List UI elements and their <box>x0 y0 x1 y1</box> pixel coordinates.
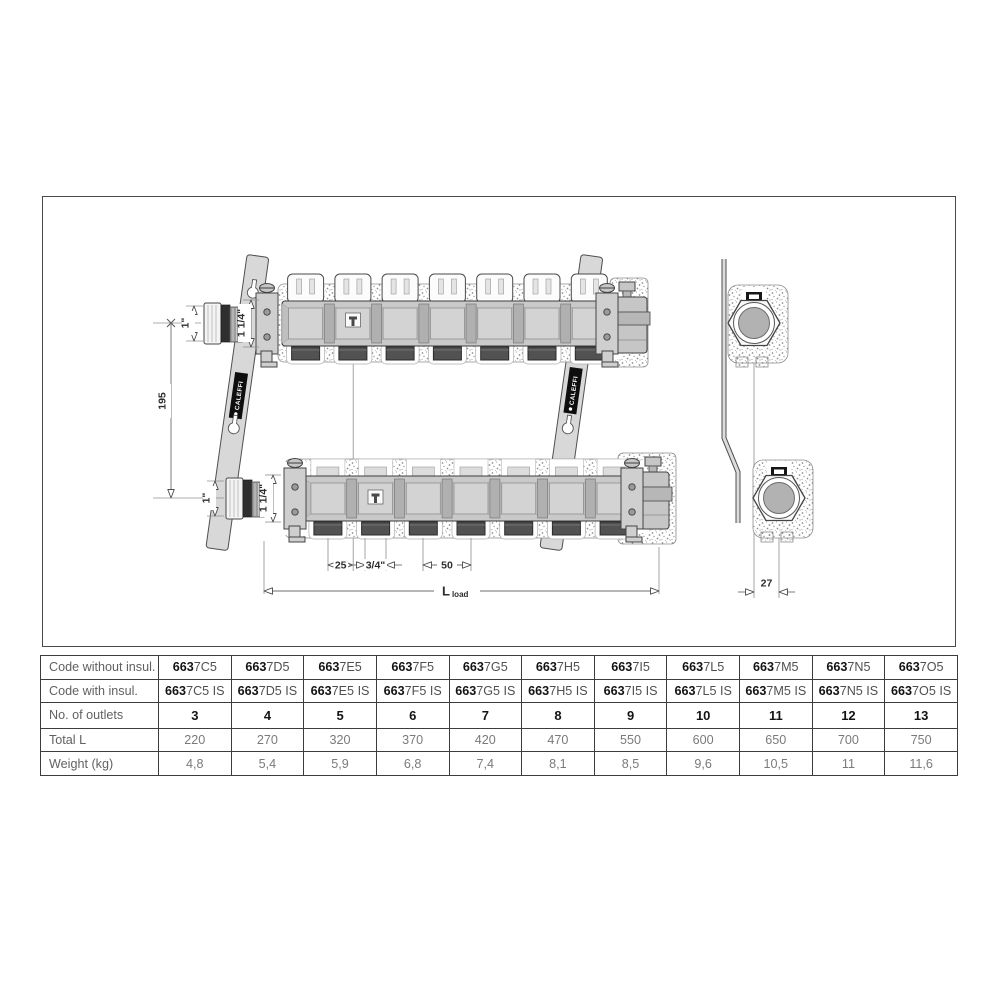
body-panel <box>289 308 323 339</box>
outlet-port <box>292 347 320 360</box>
code-cell: 6637I5 <box>594 656 667 680</box>
valve-knob <box>288 274 324 303</box>
outlet-port <box>386 347 414 360</box>
weight-cell: 4,8 <box>159 752 232 776</box>
body-panel <box>549 483 583 514</box>
row-label-cell: Total L <box>41 728 159 752</box>
body-joint <box>585 479 595 518</box>
dim-total-length: Lload <box>264 541 659 599</box>
length-cell: 470 <box>522 728 595 752</box>
outlet-port <box>457 522 485 535</box>
outlets-cell: 6 <box>376 703 449 728</box>
valve-knob <box>477 274 513 303</box>
code-cell: 6637L5 <box>667 656 740 680</box>
outlet-port <box>433 347 461 360</box>
outlet-port <box>528 347 556 360</box>
body-joint <box>347 479 357 518</box>
bottom-insulation-notches <box>311 459 631 477</box>
code-cell: 6637I5 IS <box>594 679 667 703</box>
dim-depth-offset: 27 <box>738 538 795 598</box>
body-joint <box>538 479 548 518</box>
body-panel <box>383 308 417 339</box>
top-right-clamp <box>596 284 618 368</box>
dim-cap-thread-top: 1" <box>180 306 204 341</box>
outlets-cell: 9 <box>594 703 667 728</box>
dim-main-thread-bottom: 1 1/4" <box>258 475 282 522</box>
body-joint <box>394 479 404 518</box>
code-cell: 6637C5 IS <box>159 679 232 703</box>
dim-label-1in: 1" <box>201 493 213 504</box>
body-panel <box>525 308 559 339</box>
weight-cell: 6,8 <box>376 752 449 776</box>
row-no-of-outlets: No. of outlets345678910111213 <box>41 703 958 728</box>
outlets-cell: 13 <box>885 703 958 728</box>
body-joint <box>561 304 571 343</box>
weight-cell: 10,5 <box>740 752 813 776</box>
row-label-cell: Code without insul. <box>41 656 159 680</box>
weight-cell: 8,5 <box>594 752 667 776</box>
row-label-cell: Weight (kg) <box>41 752 159 776</box>
row-code-with-insul: Code with insul.6637C5 IS6637D5 IS6637E5… <box>41 679 958 703</box>
caleffi-emblem-bottom <box>368 490 383 504</box>
valve-knob <box>524 274 560 303</box>
outlets-cell: 3 <box>159 703 232 728</box>
code-cell: 6637E5 <box>304 656 377 680</box>
body-joint <box>490 479 500 518</box>
code-cell: 6637H5 IS <box>522 679 595 703</box>
bottom-manifold-cross-section <box>753 460 813 542</box>
top-left-clamp <box>256 284 278 368</box>
body-joint <box>466 304 476 343</box>
valve-knob <box>429 274 465 303</box>
outlet-port <box>409 522 437 535</box>
outlets-cell: 11 <box>740 703 813 728</box>
valve-knob <box>335 274 371 303</box>
code-cell: 6637D5 <box>231 656 304 680</box>
body-joint <box>324 304 334 343</box>
drawing-frame: CALEFFI CALEFFI <box>42 196 956 647</box>
code-cell: 6637O5 IS <box>885 679 958 703</box>
weight-cell: 7,4 <box>449 752 522 776</box>
bottom-left-clamp <box>284 459 306 543</box>
outlet-port <box>339 347 367 360</box>
length-cell: 370 <box>376 728 449 752</box>
outlets-cell: 7 <box>449 703 522 728</box>
weight-cell: 5,4 <box>231 752 304 776</box>
length-cell: 320 <box>304 728 377 752</box>
body-joint <box>442 479 452 518</box>
length-cell: 550 <box>594 728 667 752</box>
length-cell: 600 <box>667 728 740 752</box>
body-joint <box>419 304 429 343</box>
caleffi-emblem-top <box>346 313 361 327</box>
code-cell: 6637D5 IS <box>231 679 304 703</box>
outlets-cell: 5 <box>304 703 377 728</box>
dim-label-1-1-4in: 1 1/4" <box>236 309 248 337</box>
dim-label-195: 195 <box>157 392 169 410</box>
technical-drawing: CALEFFI CALEFFI <box>43 197 955 646</box>
body-joint <box>513 304 523 343</box>
weight-cell: 11,6 <box>885 752 958 776</box>
body-panel <box>311 483 345 514</box>
row-code-without-insul: Code without insul.6637C56637D56637E5663… <box>41 656 958 680</box>
dim-label-3-4in: 3/4" <box>366 559 386 571</box>
code-cell: 6637N5 <box>812 656 885 680</box>
top-valve-knobs <box>288 274 608 303</box>
valve-knob <box>382 274 418 303</box>
weight-cell: 8,1 <box>522 752 595 776</box>
code-cell: 6637O5 <box>885 656 958 680</box>
dim-label-27: 27 <box>761 578 773 590</box>
body-panel <box>454 483 488 514</box>
outlet-port <box>481 347 509 360</box>
datasheet-page: CALEFFI CALEFFI <box>0 0 1000 1000</box>
dim-centre-distance: 195 <box>153 319 224 498</box>
outlets-cell: 12 <box>812 703 885 728</box>
code-cell: 6637L5 IS <box>667 679 740 703</box>
length-cell: 750 <box>885 728 958 752</box>
body-panel <box>406 483 440 514</box>
bottom-right-clamp <box>621 459 643 543</box>
outlet-port <box>314 522 342 535</box>
length-cell: 220 <box>159 728 232 752</box>
dim-label-50: 50 <box>441 559 453 571</box>
code-cell: 6637M5 <box>740 656 813 680</box>
code-cell: 6637N5 IS <box>812 679 885 703</box>
outlets-cell: 4 <box>231 703 304 728</box>
spec-table: Code without insul.6637C56637D56637E5663… <box>40 655 958 776</box>
code-cell: 6637G5 <box>449 656 522 680</box>
code-cell: 6637F5 IS <box>376 679 449 703</box>
dim-label-25: 25 <box>335 559 347 571</box>
row-label-cell: No. of outlets <box>41 703 159 728</box>
row-total-l: Total L220270320370420470550600650700750 <box>41 728 958 752</box>
code-cell: 6637M5 IS <box>740 679 813 703</box>
body-panel <box>478 308 512 339</box>
body-panel <box>502 483 536 514</box>
code-cell: 6637H5 <box>522 656 595 680</box>
code-cell: 6637F5 <box>376 656 449 680</box>
weight-cell: 5,9 <box>304 752 377 776</box>
row-label-cell: Code with insul. <box>41 679 159 703</box>
top-manifold-cross-section <box>728 285 788 367</box>
length-cell: 700 <box>812 728 885 752</box>
length-cell: 650 <box>740 728 813 752</box>
body-joint <box>372 304 382 343</box>
length-cell: 270 <box>231 728 304 752</box>
length-cell: 420 <box>449 728 522 752</box>
code-cell: 6637G5 IS <box>449 679 522 703</box>
outlets-cell: 10 <box>667 703 740 728</box>
dim-outlet-connection: 3/4" <box>349 559 402 571</box>
dim-label-1-1-4in: 1 1/4" <box>258 484 270 512</box>
row-weight: Weight (kg)4,85,45,96,87,48,18,59,610,51… <box>41 752 958 776</box>
side-view <box>724 259 813 542</box>
dim-outlet-spacing: 50 <box>423 559 471 571</box>
outlet-port <box>505 522 533 535</box>
weight-cell: 11 <box>812 752 885 776</box>
spec-table-wrap: Code without insul.6637C56637D56637E5663… <box>40 655 958 776</box>
code-cell: 6637E5 IS <box>304 679 377 703</box>
outlets-cell: 8 <box>522 703 595 728</box>
outlet-port <box>362 522 390 535</box>
outlet-port <box>552 522 580 535</box>
code-cell: 6637C5 <box>159 656 232 680</box>
weight-cell: 9,6 <box>667 752 740 776</box>
dim-label-1in: 1" <box>180 318 192 329</box>
body-panel <box>430 308 464 339</box>
